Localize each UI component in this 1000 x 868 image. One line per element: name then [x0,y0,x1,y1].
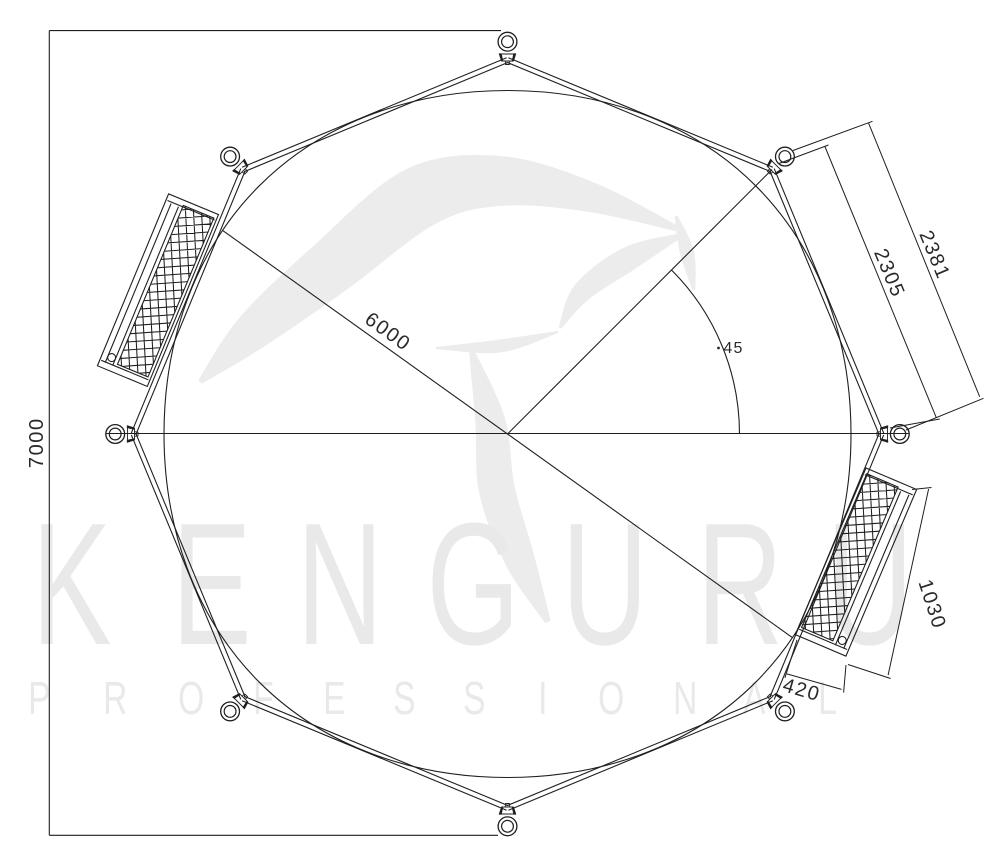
svg-text:N: N [673,673,697,724]
svg-text:I: I [538,673,547,724]
svg-text:A: A [743,673,766,724]
svg-text:P: P [28,673,50,724]
svg-text:U: U [562,487,649,681]
svg-text:S: S [463,673,485,724]
svg-text:K: K [32,487,112,681]
svg-text:E: E [172,487,252,681]
svg-text:F: F [253,673,274,724]
svg-text:S: S [393,673,415,724]
svg-text:1030: 1030 [913,577,950,632]
svg-text:N: N [296,487,383,681]
svg-text:2381: 2381 [914,227,954,282]
svg-text:2305: 2305 [869,246,909,301]
svg-text:G: G [426,487,519,681]
svg-text:O: O [598,673,624,724]
svg-text:420: 420 [780,674,823,706]
svg-text:L: L [818,673,837,724]
svg-text:O: O [178,673,204,724]
svg-text:45: 45 [723,340,743,357]
svg-text:E: E [323,673,345,724]
svg-text:7000: 7000 [26,417,48,468]
svg-text:R: R [696,487,783,681]
svg-text:R: R [103,673,127,724]
